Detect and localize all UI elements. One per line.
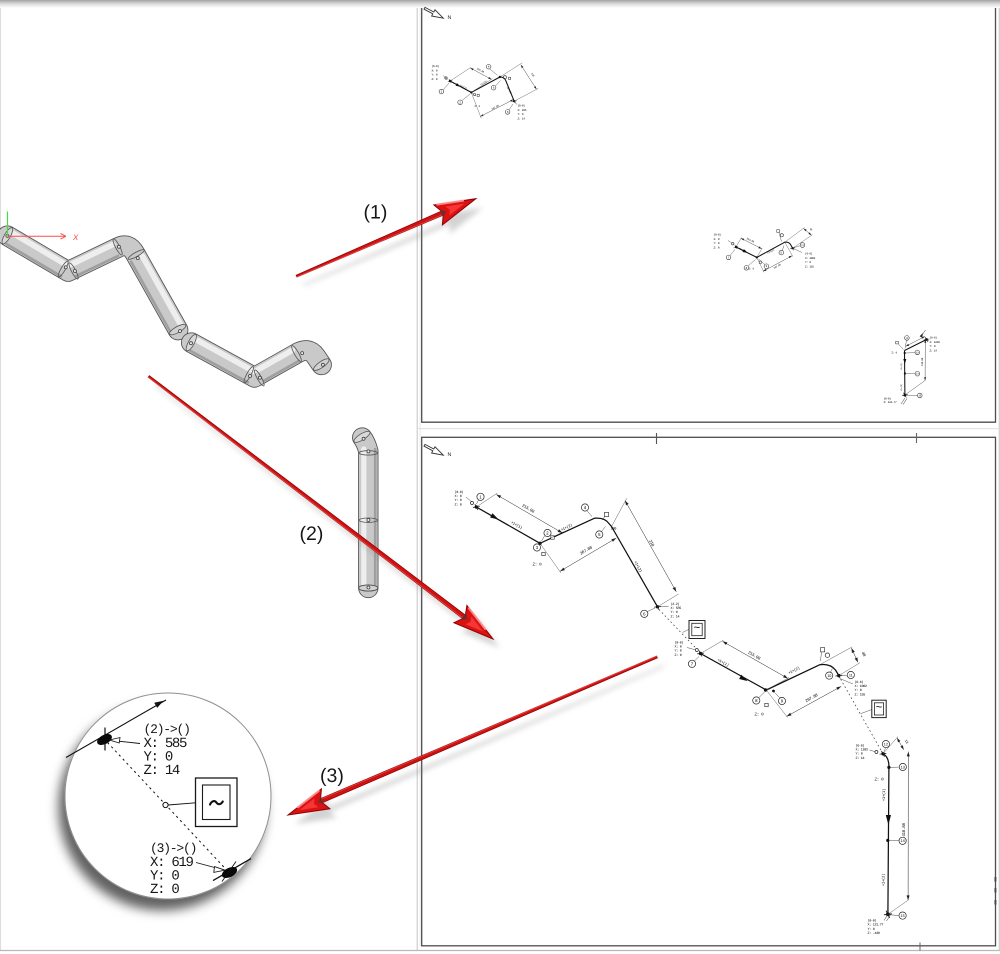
svg-text:X: 121.77: X: 121.77 [868, 923, 884, 927]
svg-text:X: 105: X: 105 [518, 109, 527, 112]
svg-text:1: 1 [479, 495, 482, 500]
svg-text:13: 13 [901, 765, 905, 769]
svg-text:6: 6 [507, 110, 509, 113]
svg-text:11: 11 [849, 673, 853, 677]
svg-text:6: 6 [643, 612, 646, 617]
svg-text:Y: 0: Y: 0 [432, 73, 438, 76]
svg-text:13: 13 [916, 351, 919, 354]
svg-text:+1+(1): +1+(1) [882, 789, 886, 801]
svg-text:10: 10 [827, 674, 831, 678]
svg-text:Y: 0: Y: 0 [675, 649, 682, 653]
svg-text:(6-6): (6-6) [855, 680, 864, 684]
svg-text:X: 0: X: 0 [714, 238, 720, 241]
svg-text:X: 585: X: 585 [671, 607, 682, 611]
svg-text:2: 2 [546, 531, 549, 536]
svg-text:5: 5 [598, 532, 601, 537]
svg-text:(2-2): (2-2) [671, 602, 680, 606]
svg-text:14: 14 [900, 839, 904, 843]
svg-text:15: 15 [918, 394, 921, 397]
svg-text:(0-0): (0-0) [868, 919, 877, 923]
svg-text:~: ~ [694, 623, 701, 636]
svg-text:Z: 14: Z: 14 [671, 615, 680, 619]
svg-text:Y: 0: Y: 0 [805, 261, 811, 264]
svg-text:X: 0: X: 0 [675, 645, 682, 649]
svg-text:14: 14 [916, 372, 919, 375]
svg-text:Y: 0: Y: 0 [856, 752, 863, 756]
svg-text:(2): (2) [300, 523, 325, 545]
svg-text:(0-0): (0-0) [432, 65, 439, 68]
svg-text:Z: 0: Z: 0 [475, 105, 481, 108]
svg-text:11: 11 [801, 244, 804, 247]
svg-text:12: 12 [884, 742, 888, 746]
svg-text:5: 5 [781, 251, 783, 254]
svg-text:Z: 0: Z: 0 [749, 268, 755, 271]
svg-text:Z: 0: Z: 0 [875, 777, 884, 782]
svg-text:Z: 0: Z: 0 [150, 883, 180, 899]
svg-text:5: 5 [493, 86, 495, 89]
svg-text:(0-0): (0-0) [884, 397, 891, 400]
svg-text:(0-0): (0-0) [518, 104, 525, 107]
svg-text:(6-6): (6-6) [805, 252, 812, 255]
svg-text:(0-0): (0-0) [714, 233, 721, 236]
svg-text:X: 1203: X: 1203 [930, 341, 940, 344]
svg-text:Z: 0: Z: 0 [455, 503, 462, 507]
svg-text:Y: 0: Y: 0 [714, 242, 720, 245]
svg-text:4: 4 [584, 505, 587, 510]
svg-text:+1+(2): +1+(2) [900, 384, 903, 391]
svg-text:~: ~ [876, 702, 883, 715]
svg-text:X: 121.77: X: 121.77 [884, 401, 897, 404]
svg-text:Z: 14: Z: 14 [856, 756, 865, 760]
svg-text:Z: 14: Z: 14 [930, 349, 938, 352]
svg-text:+1+(2): +1+(2) [882, 874, 886, 886]
svg-text:X: X [72, 233, 79, 242]
svg-text:Y: 0: Y: 0 [930, 345, 936, 348]
svg-text:Z: 14: Z: 14 [144, 764, 181, 780]
svg-text:Z: 0: Z: 0 [714, 246, 720, 249]
svg-text:X: 1062: X: 1062 [855, 685, 868, 689]
svg-text:Z: -420: Z: -420 [868, 932, 881, 936]
svg-text:7: 7 [691, 662, 694, 667]
svg-text:Y: 0: Y: 0 [671, 611, 678, 615]
svg-text:(3): (3) [320, 765, 345, 787]
svg-text:X: 1062: X: 1062 [805, 257, 815, 260]
svg-text:Z: 0: Z: 0 [675, 653, 682, 657]
svg-text:(0-0): (0-0) [675, 641, 684, 645]
svg-text:Z: 14: Z: 14 [518, 117, 526, 120]
svg-text:+1+(1): +1+(1) [900, 363, 903, 370]
svg-text:9: 9 [766, 265, 768, 268]
svg-text:Y: 0: Y: 0 [455, 499, 462, 503]
svg-text:15: 15 [900, 914, 904, 918]
svg-text:(6-6): (6-6) [856, 744, 865, 748]
svg-text:N: N [448, 15, 452, 21]
svg-text:1: 1 [441, 90, 443, 93]
svg-text:2: 2 [459, 101, 461, 104]
svg-text:Y: 0: Y: 0 [518, 113, 524, 116]
svg-text:X: 0: X: 0 [455, 495, 462, 499]
svg-text:Y: 0: Y: 0 [868, 927, 875, 931]
svg-text:12: 12 [906, 337, 909, 340]
svg-text:Y: 0: Y: 0 [855, 689, 862, 693]
svg-text:Z: 0: Z: 0 [892, 352, 898, 355]
svg-text:9: 9 [781, 699, 784, 704]
svg-text:180: 180 [611, 527, 617, 531]
svg-text:(1): (1) [364, 201, 389, 223]
svg-text:Z: 0: Z: 0 [432, 78, 438, 81]
svg-text:8: 8 [755, 698, 758, 703]
svg-text:N: N [448, 452, 452, 458]
svg-text:8: 8 [746, 266, 748, 269]
svg-text:Z: 155: Z: 155 [855, 693, 866, 697]
svg-text:4: 4 [488, 65, 490, 68]
svg-text:(6-6): (6-6) [930, 336, 937, 339]
svg-text:X: 0: X: 0 [432, 69, 438, 72]
svg-text:3: 3 [536, 545, 539, 550]
svg-text:7: 7 [728, 256, 730, 259]
svg-text:Z: 0: Z: 0 [533, 562, 542, 567]
svg-text:418.88: 418.88 [921, 358, 924, 366]
svg-text:Z: 155: Z: 155 [805, 265, 814, 268]
svg-text:Z: 0: Z: 0 [755, 712, 764, 717]
svg-text:418.88: 418.88 [902, 823, 907, 837]
svg-text:(0-0): (0-0) [455, 490, 464, 494]
svg-text:X: 1203: X: 1203 [856, 748, 869, 752]
